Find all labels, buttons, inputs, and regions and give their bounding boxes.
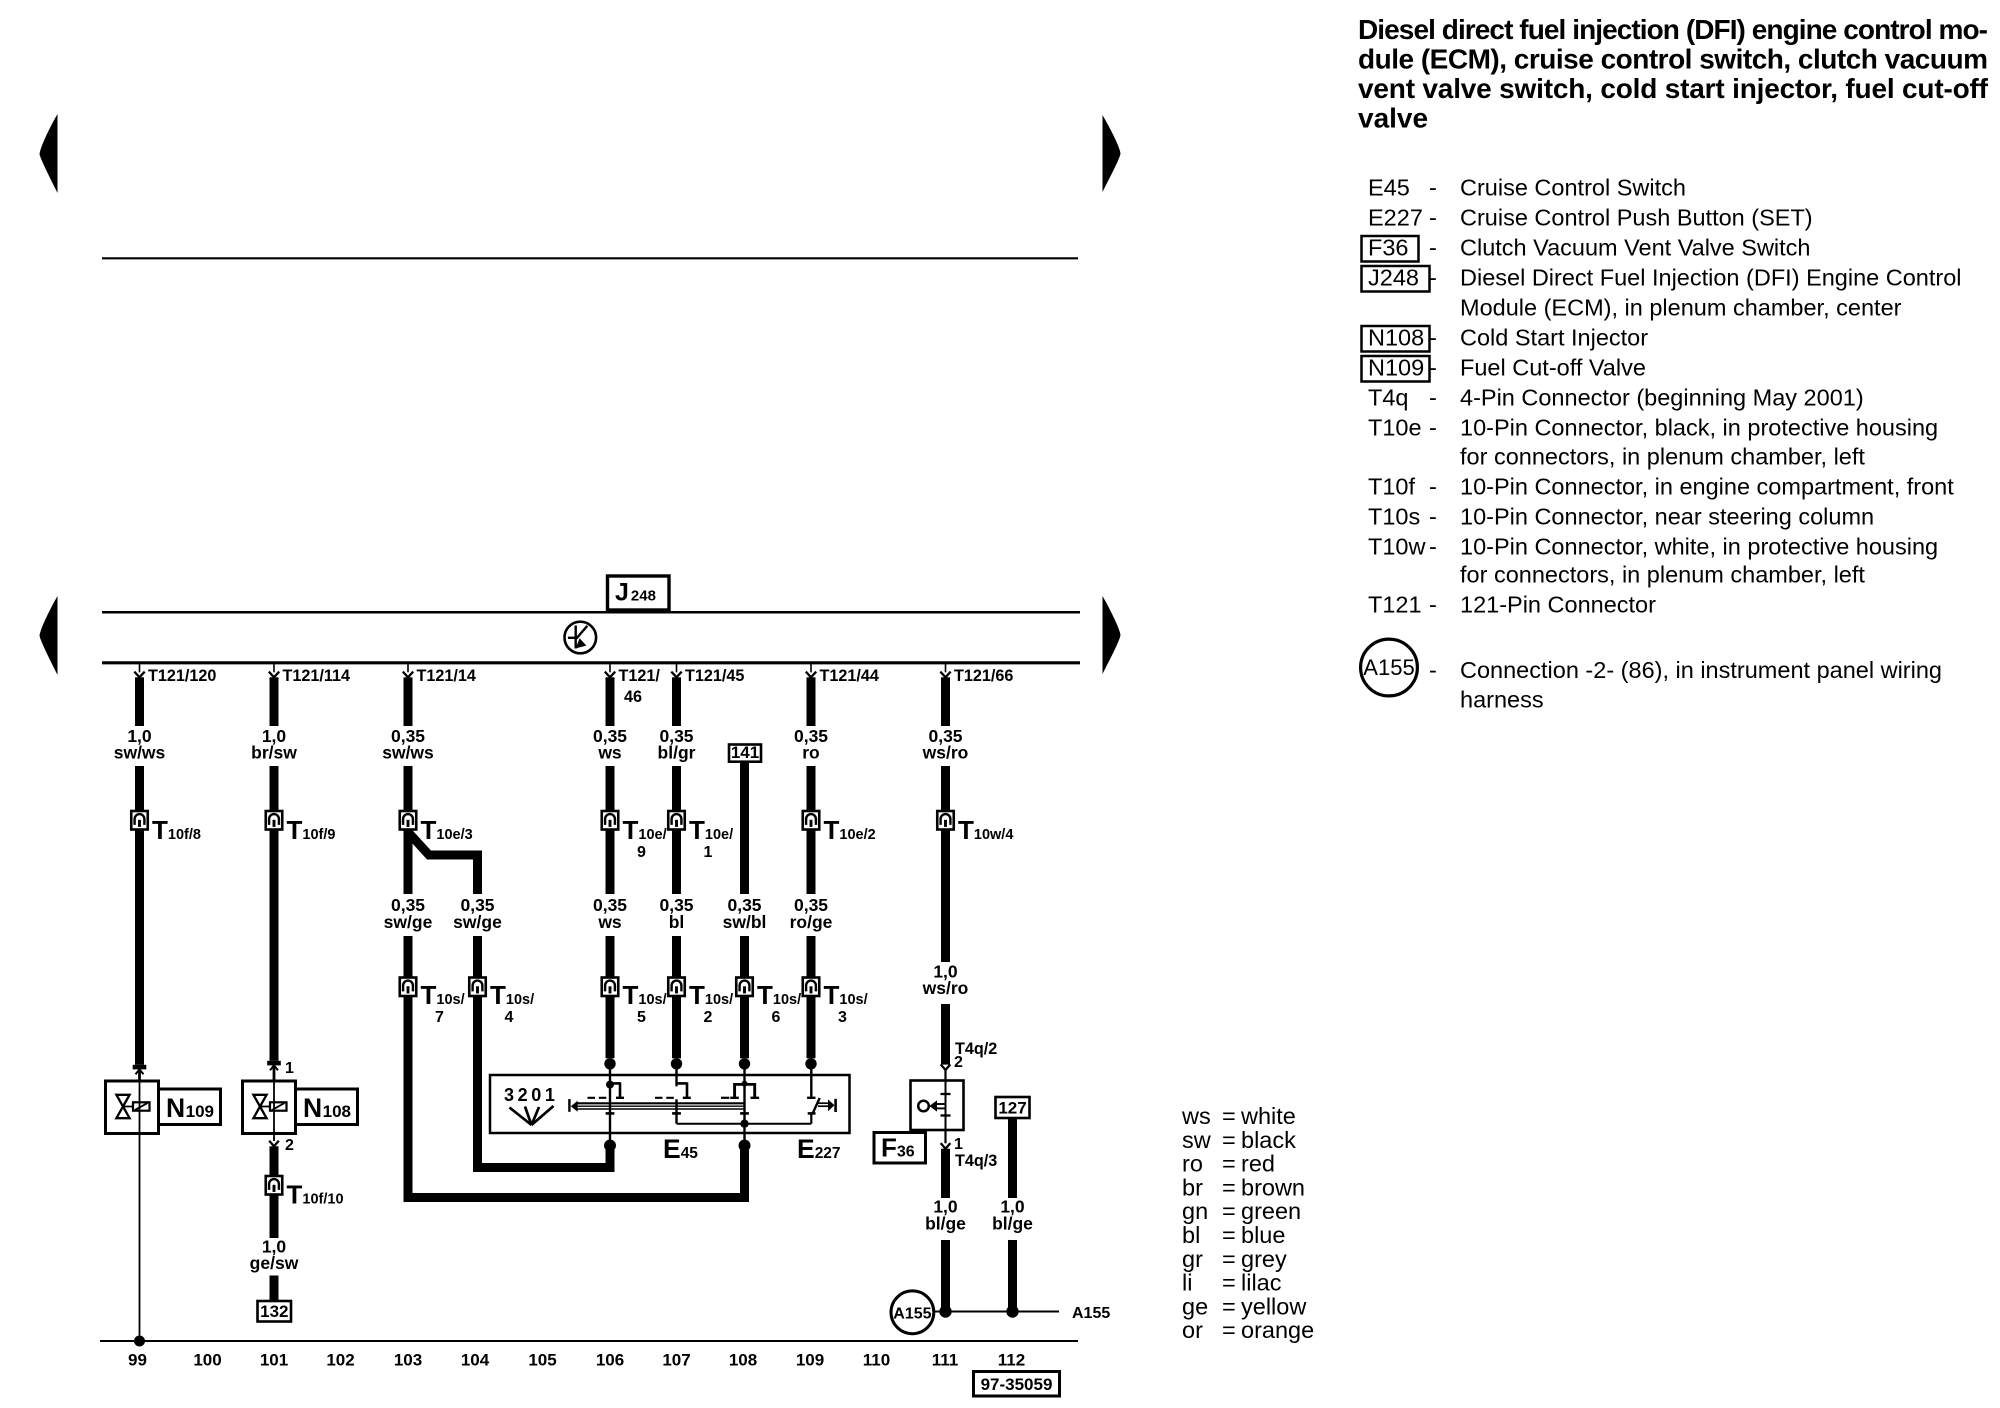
svg-text:Diesel Direct Fuel Injection (: Diesel Direct Fuel Injection (DFI) Engin… xyxy=(1460,265,1962,291)
svg-text:10-Pin Connector, black, in pr: 10-Pin Connector, black, in protective h… xyxy=(1460,415,1938,441)
svg-text:104: 104 xyxy=(461,1351,490,1370)
svg-text:bl: bl xyxy=(1182,1222,1200,1248)
svg-text:102: 102 xyxy=(326,1351,354,1370)
svg-text:9: 9 xyxy=(637,844,646,861)
svg-text:-: - xyxy=(1429,355,1437,381)
svg-text:=: = xyxy=(1222,1198,1236,1224)
svg-text:112: 112 xyxy=(998,1351,1025,1370)
svg-text:-: - xyxy=(1429,474,1437,500)
svg-text:-: - xyxy=(1429,504,1437,530)
svg-text:blue: blue xyxy=(1241,1222,1285,1248)
svg-text:ws/ro: ws/ro xyxy=(922,743,969,763)
svg-text:1: 1 xyxy=(285,1060,294,1077)
svg-text:T121/14: T121/14 xyxy=(417,667,476,685)
svg-text:-: - xyxy=(1429,235,1437,261)
svg-text:127: 127 xyxy=(998,1099,1026,1118)
svg-text:-: - xyxy=(1429,592,1437,618)
svg-text:for connectors, in plenum cham: for connectors, in plenum chamber, left xyxy=(1460,444,1865,470)
svg-text:sw/ws: sw/ws xyxy=(382,743,434,763)
svg-text:lilac: lilac xyxy=(1241,1270,1282,1296)
svg-text:101: 101 xyxy=(260,1351,288,1370)
svg-text:gr: gr xyxy=(1182,1246,1203,1272)
svg-text:bl: bl xyxy=(669,912,685,932)
svg-text:=: = xyxy=(1222,1293,1236,1319)
svg-text:2: 2 xyxy=(704,1009,713,1026)
svg-text:grey: grey xyxy=(1241,1246,1287,1272)
svg-text:Cruise Control Push Button (SE: Cruise Control Push Button (SET) xyxy=(1460,205,1813,231)
svg-text:br/sw: br/sw xyxy=(251,743,297,763)
svg-text:bl/ge: bl/ge xyxy=(925,1214,966,1234)
svg-text:T10f: T10f xyxy=(1368,474,1415,500)
svg-text:T121/45: T121/45 xyxy=(685,667,744,685)
svg-text:li: li xyxy=(1182,1270,1192,1296)
svg-text:Clutch Vacuum Vent Valve Switc: Clutch Vacuum Vent Valve Switch xyxy=(1460,235,1811,261)
svg-text:105: 105 xyxy=(528,1351,556,1370)
svg-text:ge: ge xyxy=(1182,1293,1208,1319)
svg-text:T121/44: T121/44 xyxy=(820,667,879,685)
svg-text:A155: A155 xyxy=(1072,1305,1110,1322)
svg-text:=: = xyxy=(1222,1270,1236,1296)
svg-text:-: - xyxy=(1429,265,1437,291)
svg-text:=: = xyxy=(1222,1317,1236,1343)
svg-text:green: green xyxy=(1241,1198,1301,1224)
svg-text:Cruise Control Switch: Cruise Control Switch xyxy=(1460,175,1686,201)
svg-text:T10w: T10w xyxy=(1368,534,1426,560)
svg-text:2: 2 xyxy=(954,1054,963,1071)
svg-text:ws: ws xyxy=(1181,1103,1211,1129)
svg-text:vent valve switch, cold start: vent valve switch, cold start injector, … xyxy=(1358,73,1989,104)
svg-text:=: = xyxy=(1222,1127,1236,1153)
svg-text:=: = xyxy=(1222,1246,1236,1272)
svg-text:99: 99 xyxy=(128,1351,147,1370)
svg-text:4: 4 xyxy=(505,1009,514,1026)
svg-text:ro/ge: ro/ge xyxy=(790,912,833,932)
svg-text:111: 111 xyxy=(932,1351,959,1370)
svg-text:br: br xyxy=(1182,1174,1203,1200)
svg-text:-: - xyxy=(1429,205,1437,231)
svg-text:T121/66: T121/66 xyxy=(954,667,1013,685)
svg-text:10-Pin Connector, in engine co: 10-Pin Connector, in engine compartment,… xyxy=(1460,474,1954,500)
svg-text:ro: ro xyxy=(802,743,820,763)
svg-text:-: - xyxy=(1429,325,1437,351)
svg-text:4-Pin Connector (beginning May: 4-Pin Connector (beginning May 2001) xyxy=(1460,385,1864,411)
svg-text:46: 46 xyxy=(624,688,642,706)
svg-text:-: - xyxy=(1429,385,1437,411)
svg-text:E45: E45 xyxy=(1368,175,1410,201)
svg-text:3201: 3201 xyxy=(504,1085,558,1105)
svg-text:=: = xyxy=(1222,1222,1236,1248)
svg-text:ge/sw: ge/sw xyxy=(250,1253,299,1273)
svg-text:J248: J248 xyxy=(1368,265,1419,291)
svg-text:gn: gn xyxy=(1182,1198,1208,1224)
svg-text:T121: T121 xyxy=(1368,592,1422,618)
svg-text:132: 132 xyxy=(260,1302,288,1321)
svg-text:T4q/3: T4q/3 xyxy=(955,1152,997,1170)
svg-text:T121/120: T121/120 xyxy=(148,667,216,685)
svg-text:ws/ro: ws/ro xyxy=(922,978,969,998)
svg-text:109: 109 xyxy=(796,1351,824,1370)
svg-text:121-Pin Connector: 121-Pin Connector xyxy=(1460,592,1656,618)
svg-text:-: - xyxy=(1429,415,1437,441)
svg-text:110: 110 xyxy=(863,1351,890,1370)
svg-text:100: 100 xyxy=(193,1351,221,1370)
svg-text:1: 1 xyxy=(704,844,713,861)
svg-text:E227: E227 xyxy=(1368,205,1423,231)
svg-text:Module (ECM), in plenum chambe: Module (ECM), in plenum chamber, center xyxy=(1460,295,1902,321)
svg-text:sw/bl: sw/bl xyxy=(723,912,767,932)
svg-text:brown: brown xyxy=(1241,1174,1305,1200)
svg-text:7: 7 xyxy=(435,1009,444,1026)
svg-text:2: 2 xyxy=(285,1137,294,1154)
svg-text:5: 5 xyxy=(637,1009,646,1026)
svg-text:or: or xyxy=(1182,1317,1203,1343)
svg-text:harness: harness xyxy=(1460,687,1544,713)
svg-text:3: 3 xyxy=(838,1009,847,1026)
svg-text:sw: sw xyxy=(1182,1127,1212,1153)
svg-text:ws: ws xyxy=(597,743,622,763)
svg-text:106: 106 xyxy=(596,1351,624,1370)
svg-text:Fuel Cut-off Valve: Fuel Cut-off Valve xyxy=(1460,355,1646,381)
svg-text:white: white xyxy=(1240,1103,1296,1129)
svg-text:dule (ECM), cruise control swi: dule (ECM), cruise control switch, clutc… xyxy=(1358,44,1988,75)
svg-text:6: 6 xyxy=(772,1009,781,1026)
svg-text:Cold Start Injector: Cold Start Injector xyxy=(1460,325,1648,351)
svg-text:T4q: T4q xyxy=(1368,385,1409,411)
svg-text:sw/ge: sw/ge xyxy=(384,912,433,932)
svg-text:A155: A155 xyxy=(893,1306,931,1323)
svg-text:black: black xyxy=(1241,1127,1296,1153)
svg-text:=: = xyxy=(1222,1103,1236,1129)
svg-text:=: = xyxy=(1222,1174,1236,1200)
svg-text:-: - xyxy=(1429,175,1437,201)
svg-text:10-Pin Connector, white, in pr: 10-Pin Connector, white, in protective h… xyxy=(1460,534,1938,560)
svg-text:141: 141 xyxy=(731,743,759,762)
svg-text:N108: N108 xyxy=(1368,325,1424,351)
svg-text:T10e: T10e xyxy=(1368,415,1422,441)
svg-text:sw/ge: sw/ge xyxy=(453,912,502,932)
svg-text:red: red xyxy=(1241,1151,1275,1177)
svg-text:=: = xyxy=(1222,1151,1236,1177)
svg-text:orange: orange xyxy=(1241,1317,1314,1343)
svg-text:107: 107 xyxy=(662,1351,690,1370)
svg-text:valve: valve xyxy=(1358,103,1428,134)
svg-text:108: 108 xyxy=(729,1351,757,1370)
svg-text:ws: ws xyxy=(597,912,622,932)
svg-text:10-Pin Connector, near steerin: 10-Pin Connector, near steering column xyxy=(1460,504,1874,530)
svg-text:Connection -2- (86), in instru: Connection -2- (86), in instrument panel… xyxy=(1460,657,1942,683)
svg-text:Diesel direct fuel injection (: Diesel direct fuel injection (DFI) engin… xyxy=(1358,14,1988,45)
svg-text:T121/: T121/ xyxy=(619,667,661,685)
svg-text:yellow: yellow xyxy=(1241,1293,1307,1319)
svg-text:103: 103 xyxy=(394,1351,422,1370)
svg-text:T121/114: T121/114 xyxy=(283,667,351,685)
svg-text:-: - xyxy=(1429,534,1437,560)
svg-text:F36: F36 xyxy=(1368,235,1409,261)
svg-text:T10s: T10s xyxy=(1368,504,1420,530)
svg-text:-: - xyxy=(1429,657,1437,683)
svg-text:bl/ge: bl/ge xyxy=(992,1214,1033,1234)
svg-text:bl/gr: bl/gr xyxy=(658,743,696,763)
svg-text:sw/ws: sw/ws xyxy=(114,743,166,763)
svg-text:N109: N109 xyxy=(1368,355,1424,381)
svg-text:1: 1 xyxy=(954,1136,963,1153)
svg-text:97-35059: 97-35059 xyxy=(981,1375,1053,1394)
svg-text:A155: A155 xyxy=(1363,655,1414,680)
svg-text:for connectors, in plenum cham: for connectors, in plenum chamber, left xyxy=(1460,562,1865,588)
svg-text:ro: ro xyxy=(1182,1151,1203,1177)
